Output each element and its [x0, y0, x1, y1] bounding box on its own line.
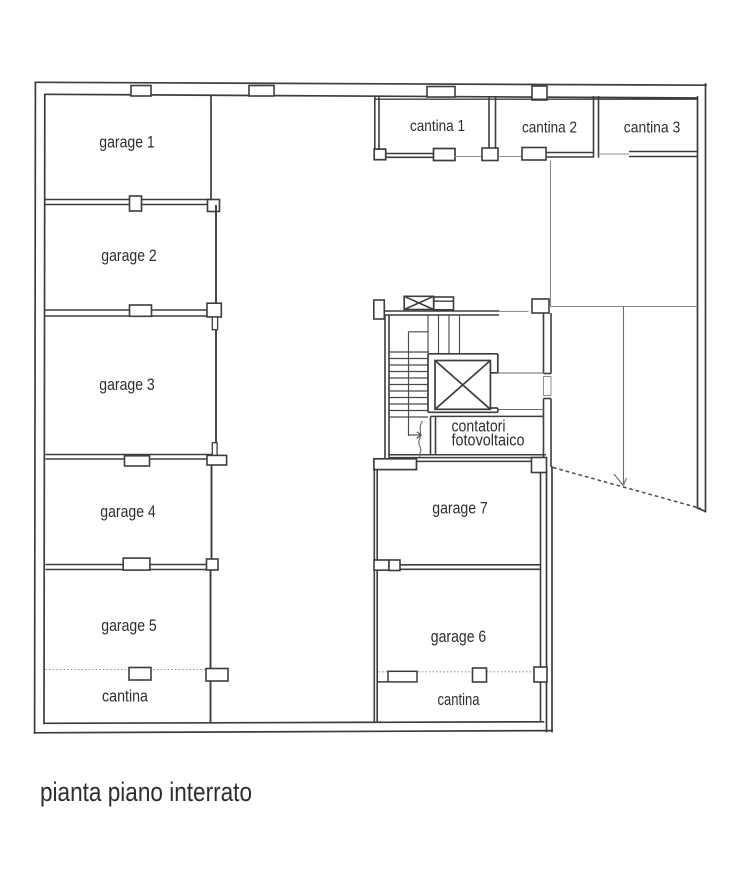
svg-text:garage 2: garage 2: [101, 247, 157, 265]
svg-text:cantina: cantina: [102, 688, 149, 706]
svg-text:garage 6: garage 6: [431, 628, 487, 646]
svg-text:garage 5: garage 5: [101, 617, 157, 635]
svg-text:garage 1: garage 1: [99, 134, 155, 152]
svg-text:pianta piano interrato: pianta piano interrato: [40, 777, 252, 807]
svg-text:garage 4: garage 4: [100, 503, 156, 521]
svg-text:cantina 3: cantina 3: [624, 120, 681, 137]
svg-text:cantina 2: cantina 2: [522, 120, 577, 137]
svg-text:garage 3: garage 3: [99, 376, 155, 394]
svg-text:cantina 1: cantina 1: [410, 118, 465, 135]
svg-text:cantina: cantina: [438, 691, 481, 709]
svg-text:garage 7: garage 7: [432, 500, 488, 518]
svg-text:fotovoltaico: fotovoltaico: [452, 432, 525, 450]
